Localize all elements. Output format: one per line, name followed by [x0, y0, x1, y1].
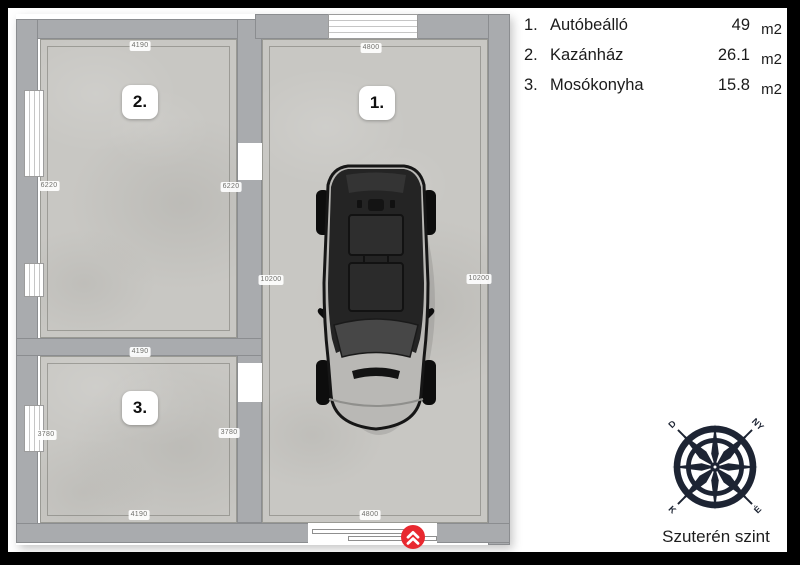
window-left-middle	[24, 263, 44, 297]
dim-room3-right: 3780	[219, 428, 240, 438]
legend-room-name: Kazánház	[550, 46, 704, 65]
legend-room-area: 15.8	[704, 76, 750, 95]
room-2-floor	[40, 39, 237, 338]
door-room-2-to-1	[238, 143, 262, 180]
dim-room1-right: 10200	[467, 274, 492, 284]
legend-row: 3. Mosókonyha 15.8 m2	[524, 76, 782, 98]
legend-area-unit: m2	[750, 76, 782, 98]
window-left-lower	[24, 405, 44, 452]
room-3-badge: 3.	[122, 391, 158, 425]
window-top-room-1	[328, 14, 418, 39]
legend-room-number: 3.	[524, 76, 550, 95]
window-left-upper	[24, 90, 44, 177]
legend-area-unit: m2	[750, 16, 782, 38]
car-top-view-icon	[316, 163, 436, 440]
legend-room-number: 2.	[524, 46, 550, 65]
dim-room1-top: 4800	[361, 43, 382, 53]
legend-row: 2. Kazánház 26.1 m2	[524, 46, 782, 68]
dim-room3-top: 4190	[130, 347, 151, 357]
room-2-badge: 2.	[122, 85, 158, 119]
compass-label-north: É	[751, 503, 763, 515]
floor-plan-page: 4190 6220 6220 4800 10200 10200 4800 419…	[0, 0, 800, 565]
dim-room1-bottom: 4800	[360, 510, 381, 520]
dim-room1-left: 10200	[259, 275, 284, 285]
dim-room2-left: 6220	[39, 181, 60, 191]
page-title: Szuterén szint	[636, 527, 796, 547]
legend-room-name: Autóbeálló	[550, 16, 704, 35]
legend-room-area: 26.1	[704, 46, 750, 65]
legend-area-unit: m2	[750, 46, 782, 68]
compass-label-east: K	[667, 504, 679, 516]
compass-label-west: NY	[750, 416, 766, 432]
legend-room-number: 1.	[524, 16, 550, 35]
wall-top-left	[16, 19, 262, 39]
compass-label-south: D	[666, 418, 678, 430]
room-1-badge: 1.	[359, 86, 395, 120]
dim-room2-right: 6220	[221, 182, 242, 192]
room-3-floor	[40, 356, 237, 523]
legend: 1. Autóbeálló 49 m2 2. Kazánház 26.1 m2 …	[524, 16, 782, 106]
dim-room3-bottom: 4190	[129, 510, 150, 520]
door-room-3-to-1	[238, 363, 262, 402]
dim-room2-top: 4190	[130, 41, 151, 51]
legend-room-area: 49	[704, 16, 750, 35]
legend-row: 1. Autóbeálló 49 m2	[524, 16, 782, 38]
entrance-arrow-icon	[401, 525, 425, 549]
compass-rose-icon: D NY K É	[658, 410, 772, 524]
dim-room3-left: 3780	[36, 430, 57, 440]
garage-door-panel	[312, 529, 408, 534]
wall-middle	[237, 19, 262, 523]
legend-room-name: Mosókonyha	[550, 76, 704, 95]
